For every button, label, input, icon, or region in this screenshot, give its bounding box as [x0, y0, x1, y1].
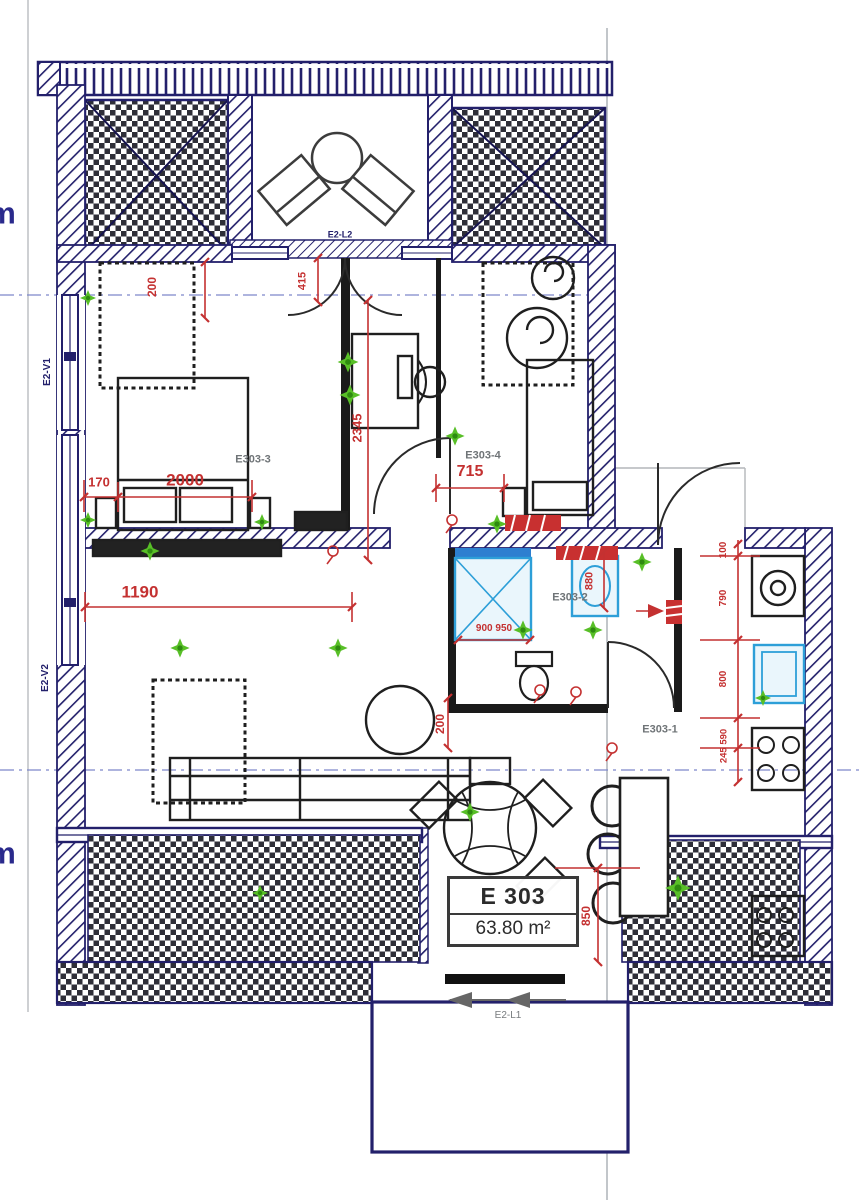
edge-text-upper: m — [0, 198, 16, 229]
window-label-v2: E2-V2 — [41, 664, 51, 692]
door-label-l1: E2-L1 — [495, 1011, 522, 1021]
dim-bed-width: 2000 — [166, 472, 204, 489]
edge-text-lower: m — [0, 838, 16, 869]
window-label-v1: E2-V1 — [43, 358, 53, 386]
door-label-l2: E2-L2 — [328, 231, 353, 240]
unit-area: 63.80 m² — [450, 915, 576, 944]
dim-hall-b: 800 — [719, 671, 729, 688]
dim-living-wall: 1190 — [122, 584, 159, 601]
dim-hall-a: 790 — [719, 590, 729, 607]
dim-hall-c: 245 590 — [719, 729, 729, 763]
terraces — [57, 835, 832, 1152]
floor-plan-page: E 303 63.80 m² E303-1 E303-2 E303-3 E303… — [0, 0, 859, 1200]
dim-corridor-length: 2345 — [351, 414, 364, 443]
dim-bed-offset: 170 — [88, 476, 110, 489]
dim-door-width: 415 — [298, 272, 309, 290]
dim-terrace-depth: 850 — [580, 906, 592, 926]
dim-bath-width: 880 — [585, 572, 596, 590]
corridor-desk — [352, 334, 445, 428]
bedroom-right-furniture — [483, 257, 593, 516]
dim-shower-size: 900 950 — [476, 624, 512, 634]
interior-partitions — [341, 258, 682, 713]
unit-label-box: E 303 63.80 m² — [447, 876, 579, 947]
room-label-bathroom: E303-2 — [552, 593, 587, 604]
bedroom-left-furniture — [96, 263, 347, 530]
room-label-bedroom-right: E303-4 — [465, 451, 500, 462]
top-balcony — [38, 62, 612, 258]
kitchen-units — [752, 556, 804, 956]
dim-bedroom2-door: 715 — [457, 464, 484, 480]
room-label-bedroom-left: E303-3 — [235, 455, 270, 466]
room-label-hall: E303-1 — [642, 725, 677, 736]
dim-hall-top: 100 — [719, 542, 729, 559]
dim-bath-door: 200 — [434, 714, 446, 734]
unit-id: E 303 — [450, 879, 576, 915]
dim-wardrobe-depth: 200 — [146, 277, 158, 297]
entry-porch — [372, 1002, 628, 1152]
